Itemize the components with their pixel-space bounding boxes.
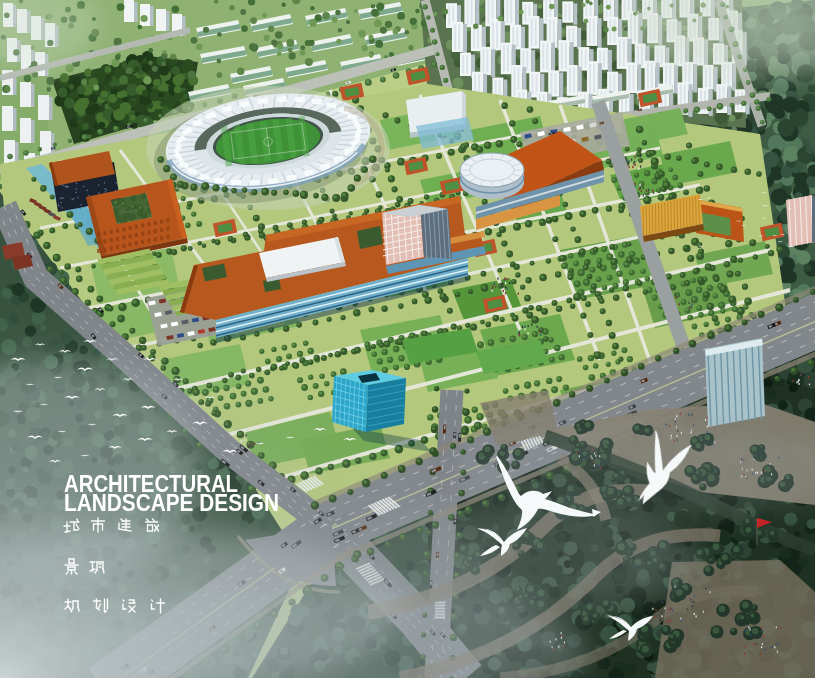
svg-text:LANDSCAPE DESIGN: LANDSCAPE DESIGN: [64, 489, 279, 516]
